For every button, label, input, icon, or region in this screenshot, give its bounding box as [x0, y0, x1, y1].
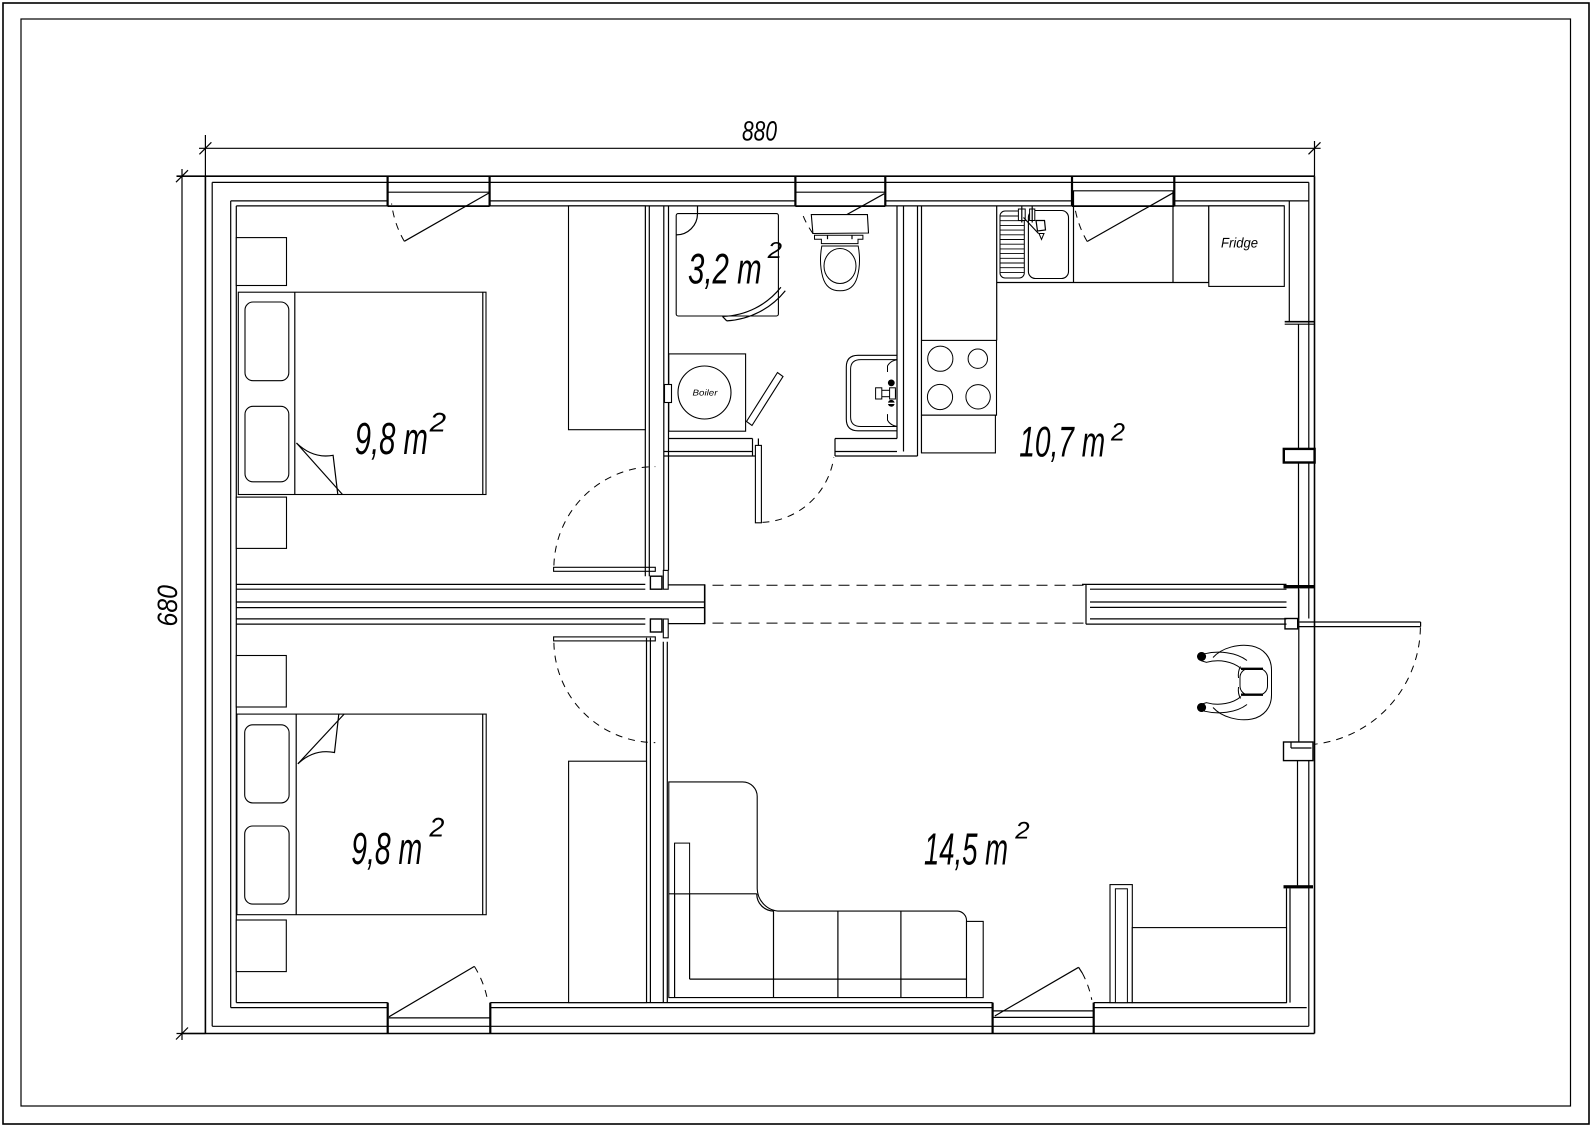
- svg-text:9,8 m: 9,8 m: [351, 823, 422, 874]
- svg-text:680: 680: [152, 585, 183, 627]
- svg-text:Fridge: Fridge: [1221, 235, 1258, 251]
- svg-text:2: 2: [766, 237, 782, 263]
- svg-text:2: 2: [1014, 817, 1029, 844]
- svg-text:2: 2: [428, 813, 444, 843]
- svg-text:3,2 m: 3,2 m: [688, 246, 762, 294]
- svg-text:9,8 m: 9,8 m: [355, 413, 428, 464]
- svg-text:14,5 m: 14,5 m: [924, 824, 1008, 875]
- svg-text:Boiler: Boiler: [693, 388, 719, 398]
- svg-text:2: 2: [1110, 419, 1125, 447]
- svg-text:2: 2: [429, 407, 447, 437]
- svg-text:880: 880: [742, 116, 777, 147]
- svg-text:10,7 m: 10,7 m: [1019, 419, 1105, 467]
